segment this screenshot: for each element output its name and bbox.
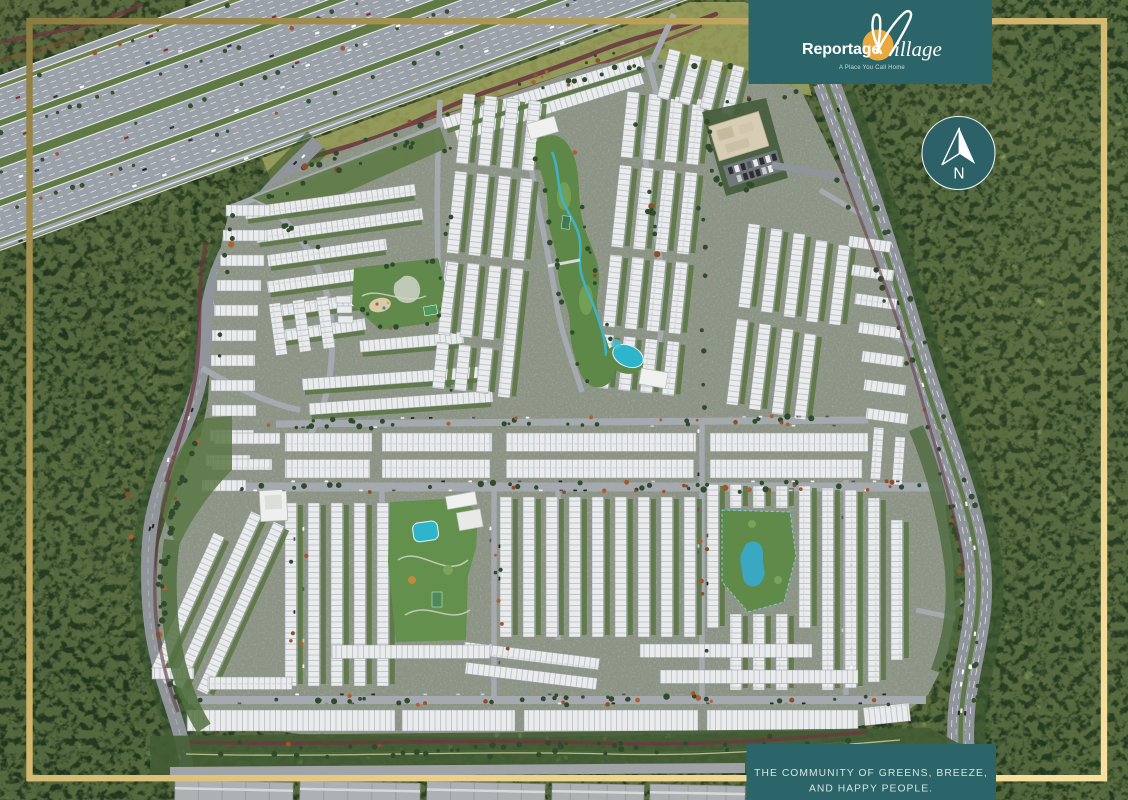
svg-text:Reportage: Reportage [802, 41, 880, 58]
svg-text:A Place You Call Home: A Place You Call Home [839, 65, 905, 71]
svg-text:illage: illage [894, 37, 942, 61]
svg-text:N: N [953, 166, 964, 183]
svg-text:AND HAPPY PEOPLE.: AND HAPPY PEOPLE. [809, 784, 933, 795]
svg-text:THE COMMUNITY OF GREENS, BREEZ: THE COMMUNITY OF GREENS, BREEZE, [754, 768, 988, 779]
